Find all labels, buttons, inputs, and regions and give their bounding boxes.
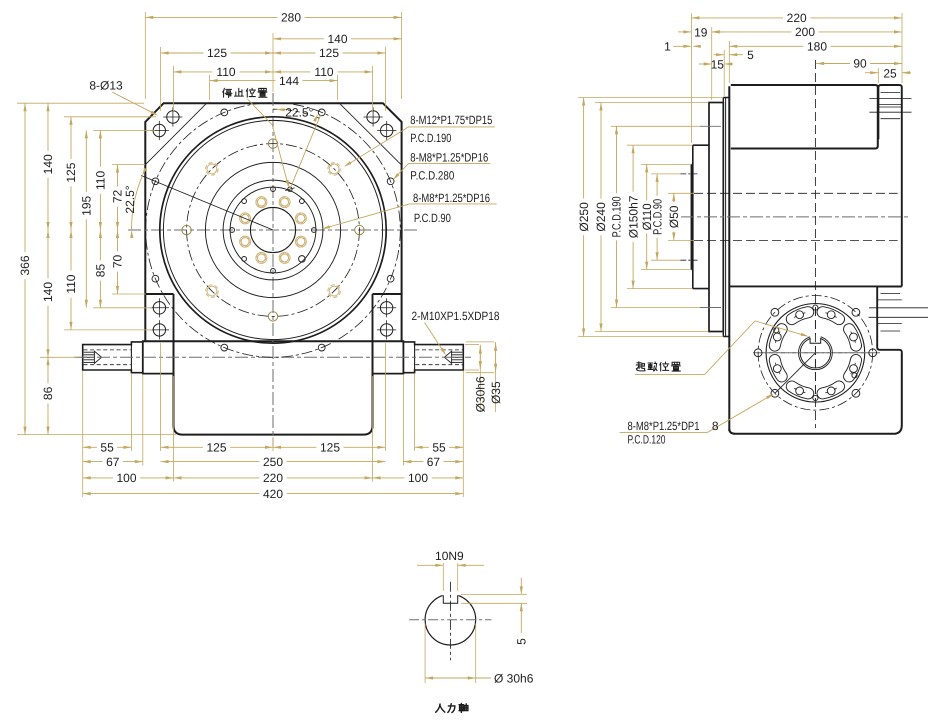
svg-text:22.5°: 22.5°: [285, 106, 313, 120]
svg-text:140: 140: [41, 282, 55, 302]
svg-text:100: 100: [116, 471, 136, 485]
svg-text:110: 110: [94, 171, 108, 190]
svg-text:Ø35: Ø35: [489, 381, 503, 404]
svg-text:140: 140: [41, 154, 55, 174]
svg-text:19: 19: [694, 26, 708, 40]
svg-text:86: 86: [41, 386, 55, 400]
svg-text:8-M8*P1.25*DP16: 8-M8*P1.25*DP16: [410, 151, 488, 165]
svg-text:110: 110: [64, 274, 78, 293]
svg-text:P.C.D.90: P.C.D.90: [414, 211, 451, 225]
svg-text:8-M12*P1.75*DP15: 8-M12*P1.75*DP15: [410, 113, 492, 127]
svg-text:8: 8: [712, 419, 719, 433]
svg-text:55: 55: [100, 441, 114, 455]
svg-text:Ø150h7: Ø150h7: [626, 195, 640, 238]
svg-text:Ø240: Ø240: [594, 202, 608, 232]
svg-text:25: 25: [883, 66, 897, 80]
svg-text:P.C.D.190: P.C.D.190: [410, 131, 451, 145]
svg-text:P.C.D.90: P.C.D.90: [650, 199, 664, 235]
svg-text:8-M8*P1.25*DP1: 8-M8*P1.25*DP1: [628, 419, 700, 433]
svg-text:100: 100: [408, 471, 428, 485]
svg-text:125: 125: [319, 46, 339, 60]
svg-text:5: 5: [747, 48, 754, 62]
svg-text:P.C.D.190: P.C.D.190: [610, 196, 624, 237]
svg-text:22.5°: 22.5°: [123, 185, 137, 213]
svg-text:85: 85: [94, 264, 108, 278]
svg-text:Ø50: Ø50: [667, 205, 681, 228]
svg-text:280: 280: [281, 11, 301, 25]
svg-text:67: 67: [427, 455, 441, 469]
svg-text:140: 140: [327, 32, 347, 46]
svg-text:10N9: 10N9: [435, 549, 464, 563]
svg-text:55: 55: [432, 441, 446, 455]
svg-text:90: 90: [853, 57, 867, 71]
svg-text:144: 144: [279, 74, 299, 88]
svg-text:67: 67: [106, 455, 120, 469]
svg-text:2-M10XP1.5XDP18: 2-M10XP1.5XDP18: [412, 309, 500, 323]
svg-text:125: 125: [320, 441, 340, 455]
svg-text:200: 200: [795, 25, 815, 39]
svg-text:250: 250: [263, 455, 283, 469]
svg-text:125: 125: [206, 441, 226, 455]
svg-text:15: 15: [711, 58, 725, 72]
svg-text:Ø 30h6: Ø 30h6: [494, 672, 534, 686]
svg-text:8-Ø13: 8-Ø13: [89, 79, 123, 93]
svg-text:Ø30h6: Ø30h6: [474, 376, 488, 412]
svg-text:Ø250: Ø250: [577, 202, 591, 232]
svg-text:366: 366: [18, 255, 32, 275]
svg-text:5: 5: [515, 638, 529, 645]
svg-text:125: 125: [64, 162, 78, 182]
svg-text:195: 195: [80, 195, 94, 215]
svg-text:110: 110: [314, 65, 333, 79]
svg-text:125: 125: [207, 46, 227, 60]
svg-text:8-M8*P1.25*DP16: 8-M8*P1.25*DP16: [413, 191, 490, 205]
svg-text:420: 420: [263, 487, 283, 501]
svg-text:180: 180: [807, 40, 827, 54]
svg-text:70: 70: [111, 255, 125, 269]
svg-text:P.C.D.120: P.C.D.120: [628, 433, 666, 447]
svg-text:1: 1: [664, 40, 671, 54]
svg-text:220: 220: [263, 471, 283, 485]
svg-text:72: 72: [111, 190, 125, 204]
svg-text:P.C.D.280: P.C.D.280: [410, 169, 454, 183]
svg-text:110: 110: [216, 65, 235, 79]
svg-text:220: 220: [787, 11, 807, 25]
